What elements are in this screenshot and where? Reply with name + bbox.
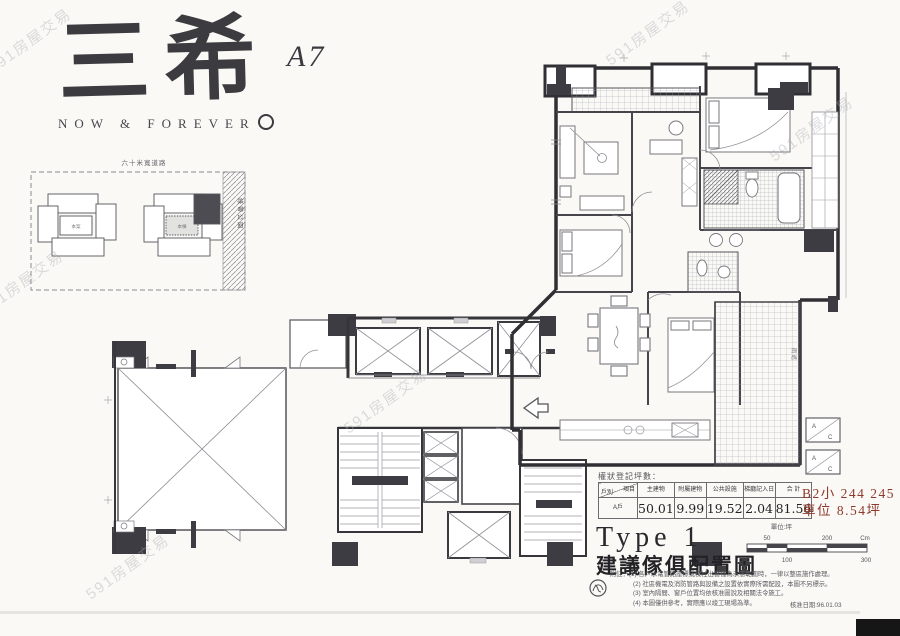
- cell-value: 50.01: [638, 498, 675, 519]
- col-header: 公共設施: [706, 483, 743, 498]
- note-line: (4) 本圖僅供參考，實際應以竣工現場為準。: [610, 599, 900, 609]
- core-area: [112, 314, 586, 566]
- ac-label-a: A: [812, 424, 816, 430]
- living-room-furniture: [560, 126, 624, 210]
- ac-label-a: A: [812, 456, 816, 462]
- scale-top-label: 200: [822, 535, 833, 542]
- notes-block: 附註：(1) 各戶水電管路座標或樑柱出窗僅為示意範圍時，一律以整區施作處理。 (…: [610, 570, 900, 608]
- ac-unit-2: A C: [806, 450, 840, 474]
- scale-top-label: 50: [764, 535, 771, 542]
- dining-set: [588, 296, 650, 376]
- bathroom-2: [688, 252, 738, 292]
- scale-bar: 50 200 Cm 0 100 300: [742, 530, 874, 566]
- table-corner-cell: 項目 戶別: [599, 483, 638, 498]
- cell-value: 19.52: [706, 498, 743, 519]
- col-header: 附屬建物: [674, 483, 706, 498]
- parking-line2: 車位 8.54坪: [802, 502, 895, 519]
- closet-strip: [812, 112, 838, 228]
- ac-label-c: C: [828, 435, 833, 441]
- corner-top-label: 項目: [623, 484, 635, 493]
- cell-value: 9.99: [674, 498, 706, 519]
- canopy-label: 雨遮: [790, 348, 798, 361]
- corner-bottom-label: 戶別: [601, 487, 613, 496]
- note-line: (2) 社區機電及消防管路與設備之設置依實際所需配設，本圖不另標示。: [610, 580, 900, 590]
- ac-unit-1: A C: [806, 418, 840, 442]
- ac-label-c: C: [828, 467, 833, 473]
- scale-bottom-label: 0: [746, 557, 750, 564]
- bedroom-left: [560, 230, 622, 276]
- cell-value: 2.04: [743, 498, 775, 519]
- col-header: 主建物: [638, 483, 675, 498]
- bedroom-3-furniture: [668, 318, 714, 392]
- row-label: A戶: [599, 498, 638, 519]
- approval-date: 核准日期:96.01.03: [790, 600, 841, 609]
- entry-arrow-icon: [524, 398, 548, 418]
- parking-info: B2小 244 245 車位 8.54坪: [802, 485, 895, 519]
- table-caption: 權狀登記坪數：: [598, 471, 661, 482]
- kitchen-counter: [560, 420, 710, 440]
- note-line: 附註：(1) 各戶水電管路座標或樑柱出窗僅為示意範圍時，一律以整區施作處理。: [610, 570, 900, 580]
- scale-top-label: Cm: [860, 535, 870, 542]
- service-terrace: [715, 302, 800, 465]
- scanned-floorplan-page: 591房屋交易 591房屋交易 591房屋交易 591房屋交易 591房屋交易 …: [0, 0, 900, 636]
- scale-bottom-label: 100: [782, 557, 793, 564]
- note-line: (3) 室內隔間、窗戶位置均依核准圖說及相關法令施工。: [610, 589, 900, 599]
- area-table: 項目 戶別 主建物 附屬建物 公共設施 梯廳記入日 合 計 A戶 50.01 9…: [598, 482, 812, 519]
- parking-line1: B2小 244 245: [802, 485, 895, 502]
- builder-seal-icon: [588, 578, 608, 598]
- scale-bottom-label: 300: [861, 557, 872, 564]
- col-header: 梯廳記入日: [743, 483, 775, 498]
